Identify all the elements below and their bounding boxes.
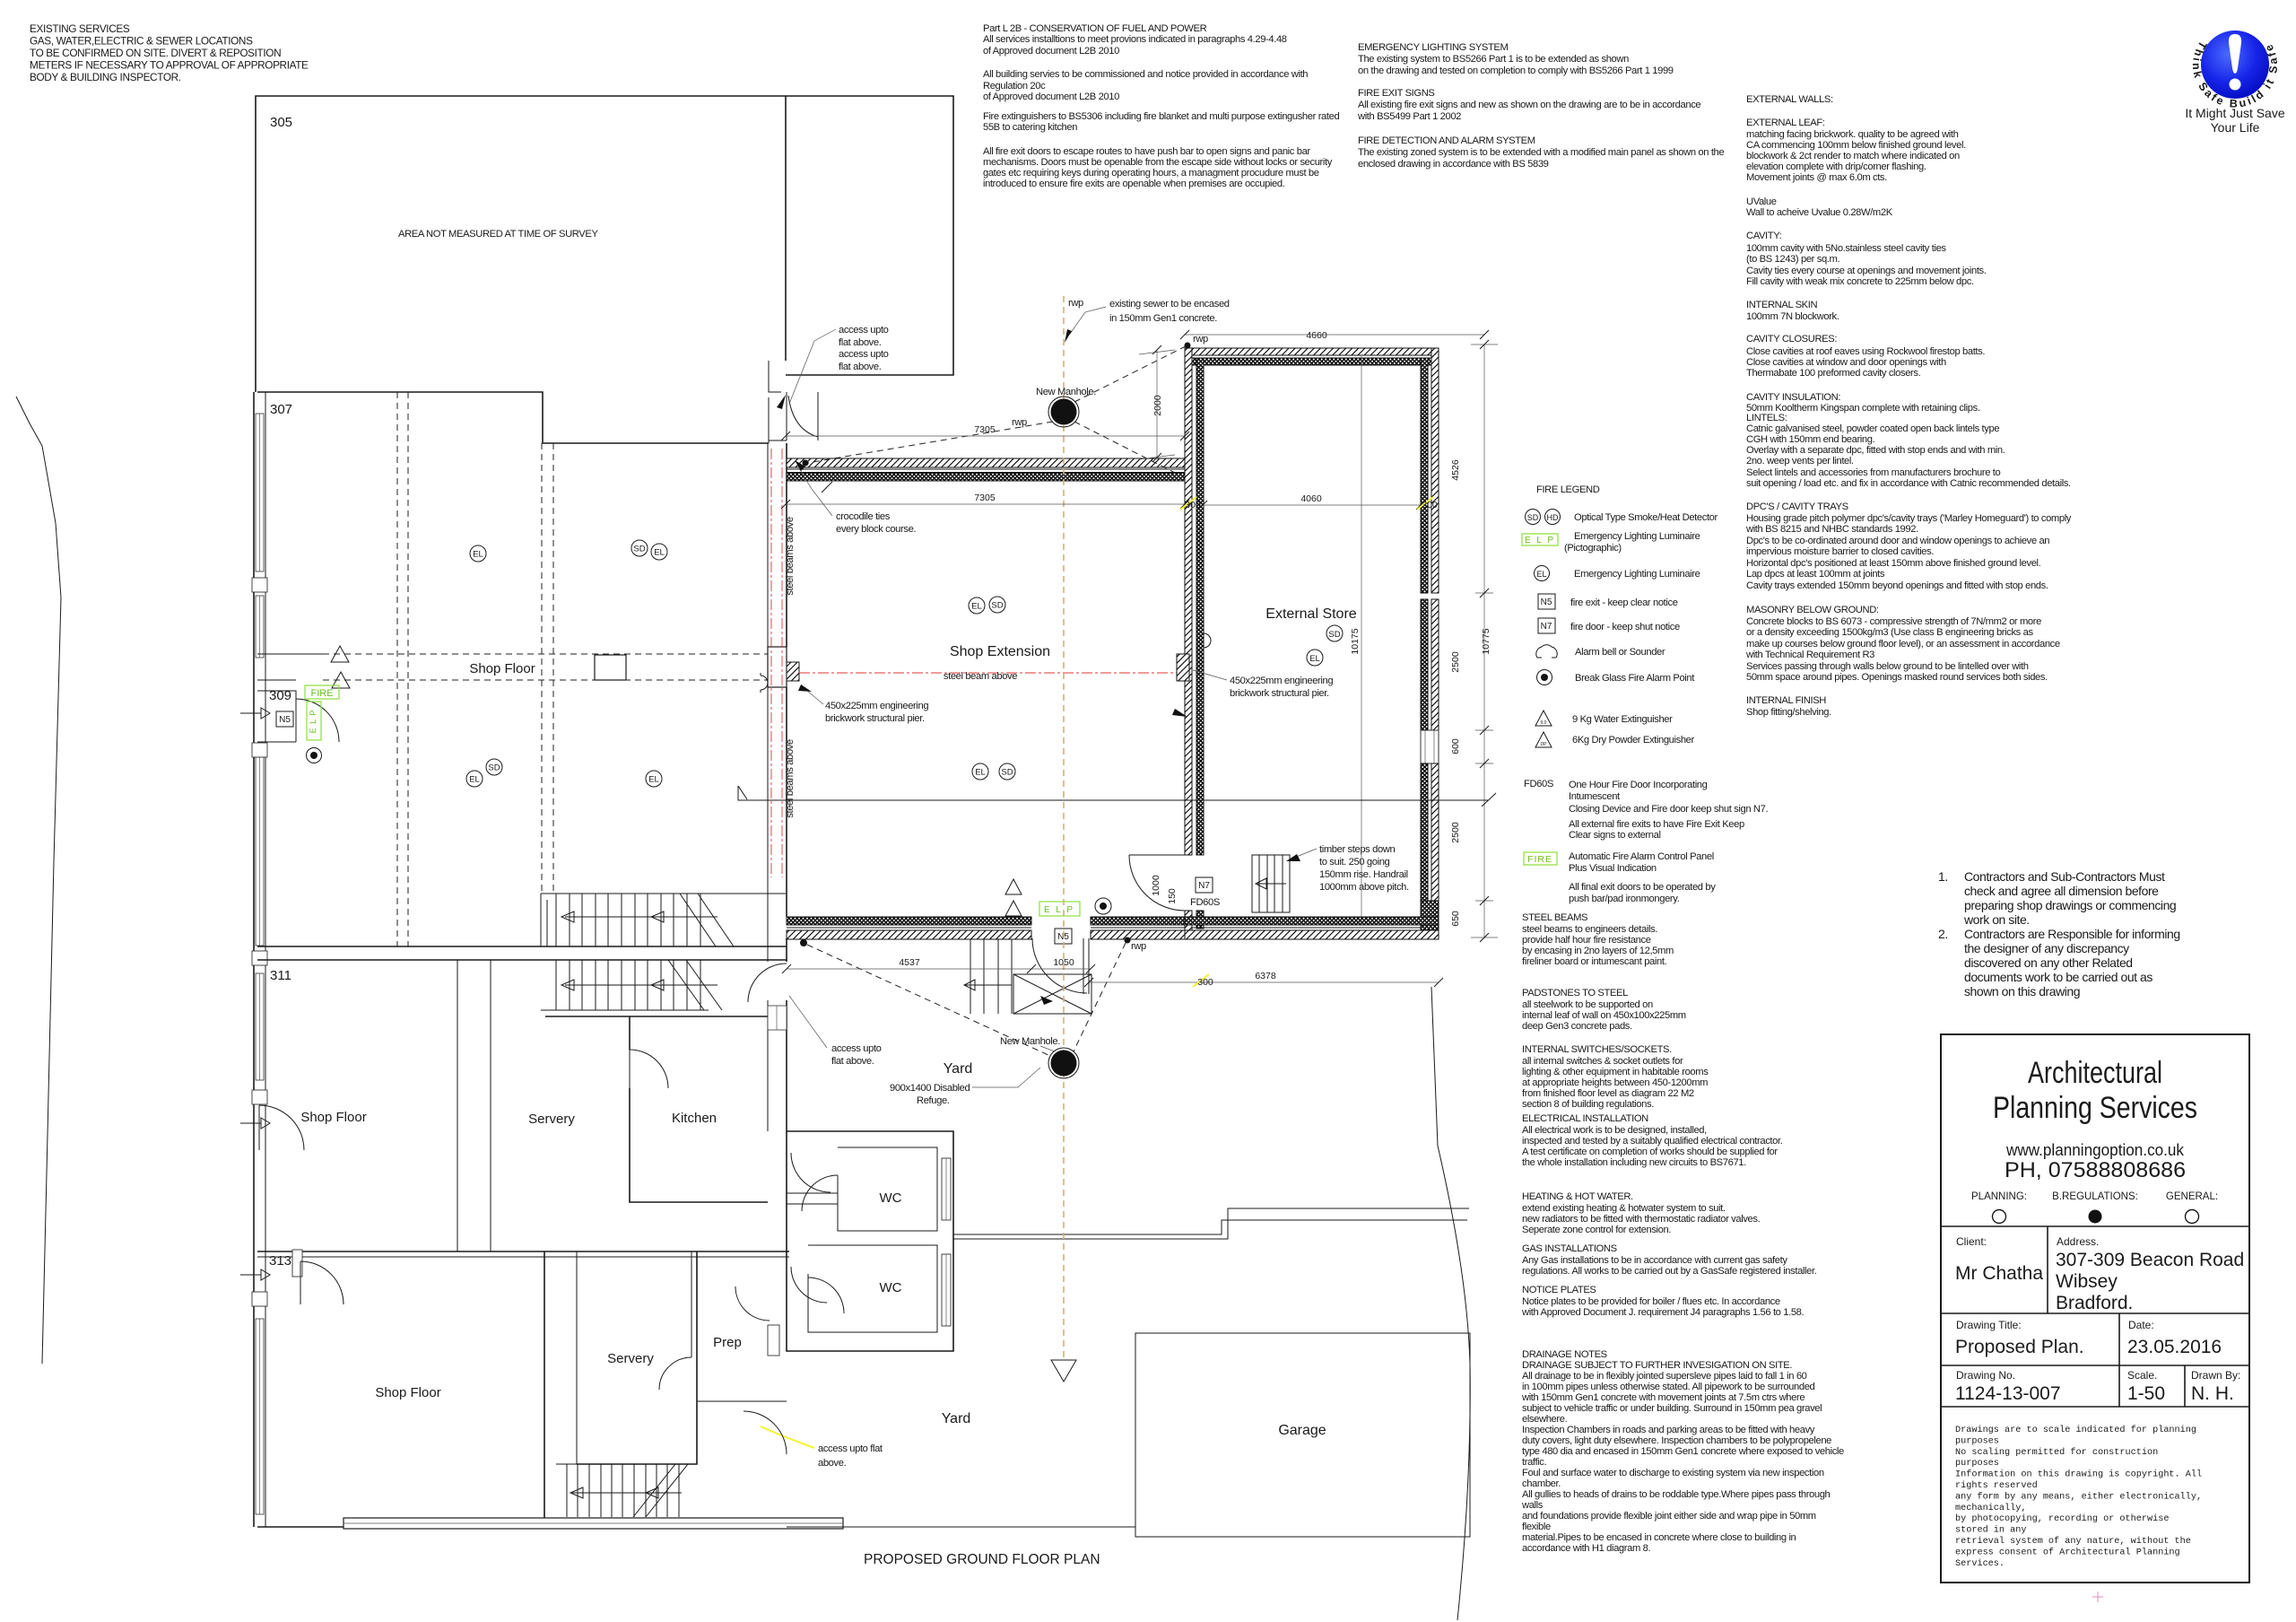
svg-text:EL: EL — [469, 775, 480, 785]
svg-text:with BS5499 Part 1 2002: with BS5499 Part 1 2002 — [1357, 111, 1461, 122]
svg-text:One Hour Fire Door Incorporati: One Hour Fire Door Incorporating — [1569, 780, 1708, 790]
svg-text:Refuge.: Refuge. — [917, 1095, 950, 1106]
svg-text:accordance with H1 diagram 8.: accordance with H1 diagram 8. — [1522, 1543, 1650, 1554]
svg-text:brickwork structural pier.: brickwork structural pier. — [1230, 688, 1329, 699]
svg-text:internal leaf of wall on 450x1: internal leaf of wall on 450x100x225mm — [1522, 1010, 1686, 1021]
svg-text:Overlay with a separate dpc, f: Overlay with a separate dpc, fitted with… — [1746, 445, 2005, 456]
svg-text:Horizontal dpc's positioned at: Horizontal dpc's positioned at least 150… — [1746, 558, 2041, 569]
svg-text:push bar/pad ironmongery.: push bar/pad ironmongery. — [1569, 894, 1680, 904]
svg-text:of Approved document L2B 2010: of Approved document L2B 2010 — [983, 46, 1119, 57]
svg-text:A test certificate on completi: A test certificate on completion of work… — [1522, 1147, 1778, 1157]
svg-text:9 Kg Water Extinguisher: 9 Kg Water Extinguisher — [1572, 714, 1673, 725]
svg-text:2no. weep vents per lintel.: 2no. weep vents per lintel. — [1746, 456, 1854, 467]
svg-text:All building servies to be com: All building servies to be commissioned … — [983, 69, 1308, 80]
svg-text:EL: EL — [654, 548, 665, 558]
svg-text:Intumescent: Intumescent — [1569, 791, 1621, 802]
svg-text:Cavity trays extended 150mm be: Cavity trays extended 150mm beyond openi… — [1746, 580, 2048, 591]
svg-text:steel beams to engineers detai: steel beams to engineers details. — [1522, 924, 1657, 935]
svg-text:EL: EL — [1309, 654, 1320, 664]
svg-text:with Technical Requirement R3: with Technical Requirement R3 — [1745, 650, 1874, 660]
svg-text:FIRE EXIT SIGNS: FIRE EXIT SIGNS — [1358, 88, 1434, 99]
svg-text:1050: 1050 — [1053, 957, 1074, 968]
svg-text:introduced to ensure fire exit: introduced to ensure fire exits are open… — [983, 179, 1285, 189]
svg-text:Notice plates to be provided f: Notice plates to be provided for boiler … — [1522, 1296, 1780, 1307]
svg-text:PROPOSED GROUND FLOOR PLAN: PROPOSED GROUND FLOOR PLAN — [864, 1552, 1100, 1567]
svg-text:EXISTING SERVICES: EXISTING SERVICES — [30, 22, 130, 35]
svg-text:check and agree all dimension: check and agree all dimension before — [1964, 884, 2159, 898]
svg-text:deep Gen3 concrete pads.: deep Gen3 concrete pads. — [1522, 1021, 1632, 1032]
svg-text:fireliner board or intumescant: fireliner board or intumescant paint. — [1522, 956, 1667, 967]
svg-text:EL: EL — [473, 550, 483, 560]
svg-text:type 480 dia and encased in 15: type 480 dia and encased in 150mm Gen1 c… — [1522, 1446, 1844, 1457]
svg-text:Wibsey: Wibsey — [2056, 1271, 2118, 1292]
svg-text:and foundations provide flexib: and foundations provide flexible joint e… — [1522, 1511, 1816, 1522]
svg-text:CAVITY CLOSURES:: CAVITY CLOSURES: — [1746, 334, 1837, 344]
svg-text:FD60S: FD60S — [1524, 779, 1553, 789]
svg-text:External Store: External Store — [1265, 606, 1356, 622]
svg-text:Housing grade pitch polymer dp: Housing grade pitch polymer dpc's/cavity… — [1746, 513, 2072, 524]
svg-text:flat above.: flat above. — [839, 362, 882, 372]
svg-text:purposes: purposes — [1955, 1459, 1999, 1469]
svg-text:www.planningoption.co.uk: www.planningoption.co.uk — [2005, 1141, 2185, 1159]
svg-text:to suit. 250 going: to suit. 250 going — [1319, 857, 1390, 868]
svg-text:existing sewer to be encased: existing sewer to be encased — [1109, 299, 1230, 310]
svg-text:1124-13-007: 1124-13-007 — [1955, 1383, 2061, 1404]
svg-text:HD: HD — [1547, 513, 1559, 522]
svg-text:NOTICE PLATES: NOTICE PLATES — [1522, 1285, 1596, 1295]
svg-text:6378: 6378 — [1255, 971, 1276, 981]
svg-text:EL: EL — [975, 768, 986, 778]
svg-text:WC: WC — [880, 1190, 902, 1206]
svg-text:flat above.: flat above. — [839, 337, 882, 348]
svg-text:Servery: Servery — [607, 1351, 654, 1366]
svg-text:access upto: access upto — [831, 1043, 882, 1054]
svg-text:900x1400 Disabled: 900x1400 Disabled — [890, 1083, 970, 1094]
svg-text:impervious moisture barrier to: impervious moisture barrier to closed ca… — [1746, 546, 1934, 557]
svg-text:HEATING & HOT WATER.: HEATING & HOT WATER. — [1522, 1191, 1633, 1202]
svg-text:PADSTONES TO STEEL: PADSTONES TO STEEL — [1522, 988, 1628, 998]
svg-text:4060: 4060 — [1300, 493, 1322, 504]
svg-text:Shop Extension: Shop Extension — [950, 644, 1050, 659]
svg-text:N7: N7 — [1541, 622, 1552, 632]
svg-text:SD: SD — [1527, 513, 1539, 522]
svg-text:311: 311 — [270, 968, 291, 983]
svg-text:All electrical work is to be: All electrical work is to be designed, i… — [1522, 1125, 1707, 1136]
svg-text:mechanisms. Doors must be open: mechanisms. Doors must be openable from … — [983, 157, 1333, 168]
svg-text:All existing fire exit signs a: All existing fire exit signs and new as … — [1358, 100, 1700, 110]
svg-text:Kitchen: Kitchen — [672, 1111, 717, 1126]
svg-text:Emergency Lighting Luminaire: Emergency Lighting Luminaire — [1574, 531, 1700, 542]
svg-text:at appropriate heights between: at appropriate heights between 450-1200m… — [1522, 1077, 1708, 1088]
svg-text:PH, 07588808686: PH, 07588808686 — [2005, 1158, 2186, 1182]
svg-text:Fill cavity with weak mix conc: Fill cavity with weak mix concrete to 22… — [1746, 276, 1974, 287]
svg-text:SD: SD — [488, 763, 500, 773]
svg-text:All fire exit doors to escape: All fire exit doors to escape routes to … — [983, 146, 1310, 157]
svg-text:rwp: rwp — [1012, 417, 1027, 428]
svg-text:regulations. All works to be c: regulations. All works to be carried out… — [1522, 1266, 1817, 1277]
svg-text:access upto: access upto — [839, 349, 889, 360]
svg-text:600: 600 — [1450, 738, 1461, 754]
svg-text:450x225mm engineering: 450x225mm engineering — [1230, 676, 1333, 686]
svg-text:All services installtions to m: All services installtions to meet provio… — [983, 34, 1287, 45]
svg-text:The existing system to BS5266: The existing system to BS5266 Part 1 is … — [1358, 54, 1629, 65]
svg-text:10175: 10175 — [1350, 628, 1361, 654]
svg-text:crocodile ties: crocodile ties — [836, 511, 891, 522]
svg-text:EXTERNAL WALLS:: EXTERNAL WALLS: — [1746, 94, 1833, 105]
svg-text:Clear signs to external: Clear signs to external — [1569, 830, 1661, 841]
svg-text:from finished floor level as d: from finished floor level as diagram 22 … — [1522, 1088, 1694, 1099]
svg-text:(Pictographic): (Pictographic) — [1564, 543, 1622, 554]
svg-text:(to BS 1243) per sq.m.: (to BS 1243) per sq.m. — [1746, 254, 1839, 265]
svg-text:Thermabate 100 preformed cavit: Thermabate 100 preformed cavity closers. — [1746, 368, 1921, 379]
svg-text:1000: 1000 — [1151, 875, 1161, 896]
svg-text:rwp: rwp — [1131, 941, 1146, 952]
svg-text:Seperate zone control for exte: Seperate zone control for extension. — [1522, 1225, 1671, 1235]
svg-text:access upto: access upto — [839, 325, 889, 336]
svg-text:all steelwork to be supported: all steelwork to be supported on — [1522, 999, 1653, 1010]
svg-text:documents work to be carried o: documents work to be carried out as — [1964, 970, 2152, 984]
svg-text:with Approved Document J. requ: with Approved Document J. requirement J4… — [1521, 1307, 1805, 1318]
svg-text:rights reserved: rights reserved — [1955, 1480, 2038, 1491]
svg-text:express consent of Architectur: express consent of Architectural Plannin… — [1955, 1547, 2180, 1557]
svg-text:Client:: Client: — [1956, 1235, 1987, 1248]
svg-text:Services passing through walls: Services passing through walls below gro… — [1746, 661, 2029, 672]
svg-text:METERS IF NECESSARY TO APPROVA: METERS IF NECESSARY TO APPROVAL OF APPRO… — [30, 59, 309, 72]
svg-text:SD: SD — [633, 545, 645, 554]
svg-text:EMERGENCY LIGHTING SYSTEM: EMERGENCY LIGHTING SYSTEM — [1358, 42, 1509, 53]
svg-text:EL: EL — [971, 602, 982, 612]
svg-text:All final exit doors to be ope: All final exit doors to be operated by — [1569, 882, 1716, 893]
svg-text:the designer of any discrepanc: the designer of any discrepancy — [1964, 941, 2129, 955]
svg-text:with 150mm Gen1 concrete with: with 150mm Gen1 concrete with movement j… — [1521, 1392, 1805, 1403]
svg-text:the whole installation includi: the whole installation including new cir… — [1522, 1157, 1746, 1168]
svg-text:Regulation 20c: Regulation 20c — [983, 81, 1046, 92]
svg-text:10775: 10775 — [1481, 628, 1492, 654]
svg-text:7305: 7305 — [974, 424, 996, 435]
svg-text:UValue: UValue — [1746, 196, 1777, 207]
svg-text:discovered on any other Relate: discovered on any other Related — [1964, 955, 2133, 970]
svg-text:Fire extinguishers to BS5306 i: Fire extinguishers to BS5306 including f… — [983, 111, 1339, 122]
svg-text:Planning Services: Planning Services — [1993, 1091, 2197, 1125]
svg-text:steel beams above: steel beams above — [785, 739, 796, 818]
svg-text:FIRE: FIRE — [310, 688, 333, 699]
svg-text:300: 300 — [1197, 977, 1213, 988]
svg-text:in 100mm pipes unless otherwis: in 100mm pipes unless otherwise stated. … — [1522, 1382, 1815, 1392]
svg-text:Lap dpcs at least 100mm at joi: Lap dpcs at least 100mm at joints — [1746, 569, 1885, 580]
svg-text:INTERNAL SWITCHES/SOCKETS.: INTERNAL SWITCHES/SOCKETS. — [1522, 1044, 1672, 1055]
svg-text:FIRE DETECTION AND ALARM SYSTE: FIRE DETECTION AND ALARM SYSTEM — [1358, 135, 1535, 146]
svg-text:stored in any: stored in any — [1955, 1525, 2026, 1536]
svg-text:Concrete blocks to BS 6073 - c: Concrete blocks to BS 6073 - compressive… — [1746, 616, 2041, 627]
svg-text:lighting & other equipment in: lighting & other equipment in habitable … — [1522, 1067, 1709, 1077]
svg-text:N7: N7 — [1198, 881, 1210, 891]
svg-text:4660: 4660 — [1306, 330, 1327, 341]
svg-text:GENERAL:: GENERAL: — [2166, 1191, 2218, 1202]
svg-text:INTERNAL FINISH: INTERNAL FINISH — [1746, 695, 1826, 706]
svg-text:any form by any means, either: any form by any means, either electronic… — [1955, 1491, 2202, 1502]
svg-text:Bradford.: Bradford. — [2056, 1293, 2133, 1313]
svg-text:313: 313 — [269, 1253, 291, 1269]
svg-text:E L P: E L P — [1044, 905, 1074, 915]
svg-text:access upto flat: access upto flat — [818, 1443, 883, 1454]
svg-text:Servery: Servery — [528, 1112, 575, 1127]
svg-text:FD60S: FD60S — [1190, 897, 1220, 908]
svg-text:preparing shop drawings or com: preparing shop drawings or commencing — [1964, 898, 2176, 912]
svg-text:1-50: 1-50 — [2127, 1383, 2165, 1404]
svg-text:All gullies to heads of drains: All gullies to heads of drains to be rod… — [1522, 1489, 1831, 1500]
svg-text:BODY & BUILDING INSPECTOR.: BODY & BUILDING INSPECTOR. — [30, 71, 181, 83]
svg-text:all internal switches & socket: all internal switches & socket outlets f… — [1522, 1056, 1683, 1067]
svg-text:Cavity ties every course at op: Cavity ties every course at openings and… — [1746, 266, 1987, 276]
svg-text:1.: 1. — [1938, 869, 1948, 884]
svg-text:Emergency Lighting Luminaire: Emergency Lighting Luminaire — [1574, 569, 1700, 580]
svg-text:Mr Chatha: Mr Chatha — [1955, 1263, 2043, 1284]
svg-text:7305: 7305 — [974, 493, 996, 503]
svg-text:6Kg Dry Powder Extinguisher: 6Kg Dry Powder Extinguisher — [1572, 735, 1695, 746]
svg-text:All external fire exits to hav: All external fire exits to have Fire Exi… — [1569, 819, 1744, 830]
svg-text:LINTELS:: LINTELS: — [1746, 413, 1787, 423]
svg-text:New Manhole.: New Manhole. — [1000, 1036, 1060, 1047]
svg-text:with BS 8215 and NHBC standard: with BS 8215 and NHBC standards 1992. — [1745, 524, 1918, 535]
svg-text:subject to vehicle traffic or: subject to vehicle traffic or under buil… — [1522, 1403, 1822, 1414]
svg-text:Proposed Plan.: Proposed Plan. — [1955, 1337, 2084, 1357]
svg-text:SD: SD — [1328, 630, 1340, 640]
svg-text:2500: 2500 — [1450, 651, 1461, 673]
svg-text:305: 305 — [270, 115, 292, 130]
svg-text:100mm 7N blockwork.: 100mm 7N blockwork. — [1746, 311, 1839, 322]
svg-text:E L P: E L P — [1525, 536, 1555, 545]
svg-text:new radiators to be fitted wit: new radiators to be fitted with thermost… — [1522, 1214, 1761, 1225]
svg-text:chamber.: chamber. — [1522, 1478, 1561, 1489]
svg-text:on the drawing and tested on c: on the drawing and tested on completion … — [1358, 65, 1674, 76]
svg-text:GAS INSTALLATIONS: GAS INSTALLATIONS — [1522, 1243, 1617, 1254]
svg-text:steel beam above: steel beam above — [944, 671, 1017, 682]
svg-text:N5: N5 — [279, 715, 291, 725]
svg-text:50mm space around pipes. Openi: 50mm space around pipes. Openings masked… — [1746, 672, 2048, 683]
svg-text:2000: 2000 — [1152, 395, 1163, 416]
svg-text:Closing Device and Fire door k: Closing Device and Fire door keep shut s… — [1569, 804, 1768, 815]
svg-text:extend existing heating & hotw: extend existing heating & hotwater syste… — [1522, 1203, 1726, 1214]
svg-text:duty covers, light duty elsewh: duty covers, light duty elsewhere. Inspe… — [1522, 1435, 1831, 1446]
svg-text:23.05.2016: 23.05.2016 — [2127, 1337, 2222, 1357]
svg-text:INTERNAL SKIN: INTERNAL SKIN — [1746, 300, 1817, 310]
svg-text:EL: EL — [648, 775, 659, 785]
svg-text:rwp: rwp — [1193, 334, 1208, 344]
svg-text:Drawn By:: Drawn By: — [2191, 1369, 2240, 1382]
svg-text:retrieval system of any nature: retrieval system of any nature, without … — [1955, 1536, 2191, 1547]
svg-text:Select lintels and accessories: Select lintels and accessories from manu… — [1746, 467, 2001, 478]
svg-text:CGH with 150mm end bearing.: CGH with 150mm end bearing. — [1746, 434, 1875, 445]
svg-text:Close cavities at roof eaves u: Close cavities at roof eaves using Rockw… — [1746, 346, 1985, 357]
svg-text:Break Glass Fire Alarm Point: Break Glass Fire Alarm Point — [1575, 673, 1695, 684]
svg-text:Optical Type Smoke/Heat Detect: Optical Type Smoke/Heat Detector — [1574, 512, 1718, 523]
svg-text:gates etc requiring keys durin: gates etc requiring keys during operatin… — [983, 168, 1319, 179]
svg-text:STEEL BEAMS: STEEL BEAMS — [1522, 912, 1587, 923]
svg-text:No scaling permitted for const: No scaling permitted for construction — [1955, 1447, 2158, 1458]
svg-text:elevation complete with drip/c: elevation complete with drip/corner flas… — [1746, 161, 1926, 172]
svg-text:150: 150 — [1167, 888, 1178, 904]
svg-text:FIRE LEGEND: FIRE LEGEND — [1536, 484, 1600, 495]
svg-text:shown on this drawing: shown on this drawing — [1964, 984, 2080, 998]
svg-text:above.: above. — [818, 1458, 847, 1469]
svg-text:Address.: Address. — [2057, 1235, 2099, 1248]
svg-text:Inspection Chambers in roads a: Inspection Chambers in roads and parking… — [1522, 1425, 1815, 1435]
svg-text:steel beams above: steel beams above — [785, 517, 796, 596]
svg-text:Scale.: Scale. — [2127, 1369, 2157, 1382]
svg-text:DP: DP — [1541, 742, 1548, 747]
svg-text:307: 307 — [270, 402, 292, 417]
svg-text:traffic.: traffic. — [1522, 1457, 1546, 1468]
svg-text:in 150mm Gen1 concrete.: in 150mm Gen1 concrete. — [1109, 313, 1217, 324]
svg-text:Prep: Prep — [713, 1335, 742, 1350]
svg-text:CA commencing 100mm below fini: CA commencing 100mm below finished groun… — [1746, 140, 1966, 151]
svg-text:Alarm bell or Sounder: Alarm bell or Sounder — [1575, 647, 1665, 658]
svg-text:150mm rise. Handrail: 150mm rise. Handrail — [1319, 869, 1408, 880]
svg-text:Contractors are Responsible fo: Contractors are Responsible for informin… — [1964, 927, 2180, 941]
svg-text:GAS, WATER,ELECTRIC & SEWER LO: GAS, WATER,ELECTRIC & SEWER LOCATIONS — [30, 35, 253, 48]
svg-text:flexible: flexible — [1522, 1522, 1551, 1532]
svg-text:B.REGULATIONS:: B.REGULATIONS: — [2052, 1191, 2138, 1202]
svg-text:purposes: purposes — [1955, 1436, 1999, 1446]
svg-text:SD: SD — [1001, 768, 1013, 778]
svg-text:Shop Floor: Shop Floor — [469, 661, 535, 676]
svg-text:PLANNING:: PLANNING: — [1971, 1191, 2027, 1202]
svg-text:Drawing Title:: Drawing Title: — [1956, 1319, 2022, 1331]
svg-text:Shop fitting/shelving.: Shop fitting/shelving. — [1746, 707, 1831, 718]
svg-text:walls: walls — [1521, 1500, 1544, 1511]
svg-text:Architectural: Architectural — [2028, 1056, 2162, 1090]
svg-text:N5: N5 — [1541, 597, 1552, 607]
svg-text:DRAINAGE SUBJECT TO FURTHER IN: DRAINAGE SUBJECT TO FURTHER INVESIGATION… — [1522, 1360, 1792, 1371]
svg-text:Movement joints @ max 6.0m cts: Movement joints @ max 6.0m cts. — [1746, 172, 1887, 183]
svg-text:FIRE: FIRE — [1527, 854, 1552, 865]
svg-text:Plus Visual Indication: Plus Visual Indication — [1569, 863, 1657, 874]
svg-text:The existing zoned system is t: The existing zoned system is to be exten… — [1358, 147, 1724, 158]
svg-text:300: 300 — [1185, 500, 1201, 510]
svg-text:Yard: Yard — [944, 1061, 973, 1077]
svg-text:of Approved document L2B 2010: of Approved document L2B 2010 — [983, 92, 1119, 102]
svg-text:9.0: 9.0 — [1541, 720, 1547, 726]
svg-text:blockwork & 2ct render to matc: blockwork & 2ct render to match where in… — [1746, 151, 1960, 161]
svg-text:every block course.: every block course. — [836, 524, 916, 535]
svg-text:Dpc's to be co-ordinated aroun: Dpc's to be co-ordinated around door and… — [1746, 536, 2049, 546]
svg-text:Part L 2B - CONSERVATION OF FU: Part L 2B - CONSERVATION OF FUEL AND POW… — [983, 23, 1207, 34]
svg-text:work on site.: work on site. — [1963, 912, 2030, 927]
svg-text:inspected and tested by a suit: inspected and tested by a suitably quali… — [1522, 1136, 1783, 1147]
svg-text:CAVITY INSULATION:: CAVITY INSULATION: — [1746, 392, 1840, 403]
svg-text:SD: SD — [991, 601, 1003, 611]
svg-text:650: 650 — [1450, 911, 1461, 927]
svg-text:4537: 4537 — [899, 957, 920, 968]
svg-text:E L P: E L P — [309, 710, 317, 734]
svg-text:4526: 4526 — [1450, 459, 1461, 481]
svg-text:307-309 Beacon Road: 307-309 Beacon Road — [2056, 1250, 2244, 1270]
svg-text:Automatic Fire Alarm Control P: Automatic Fire Alarm Control Panel — [1569, 851, 1714, 862]
svg-text:450x225mm engineering: 450x225mm engineering — [825, 701, 928, 711]
svg-text:section 8 of building regulati: section 8 of building regulations. — [1522, 1099, 1654, 1110]
svg-text:by photocopying, recording or: by photocopying, recording or otherwise — [1955, 1513, 2169, 1524]
svg-text:elsewhere.: elsewhere. — [1522, 1414, 1568, 1425]
svg-text:AREA NOT MEASURED AT TIME OF S: AREA NOT MEASURED AT TIME OF SURVEY — [398, 229, 598, 240]
svg-text:All drainage to be in flexibly: All drainage to be in flexibly jointed s… — [1522, 1371, 1807, 1382]
svg-text:Catnic galvanised steel, powde: Catnic galvanised steel, powder coated o… — [1746, 423, 1999, 434]
svg-text:Foul and surface water to disc: Foul and surface water to discharge to e… — [1522, 1468, 1824, 1478]
svg-text:DRAINAGE NOTES: DRAINAGE NOTES — [1522, 1349, 1607, 1360]
svg-text:Wall to acheive Uvalue 0.28W/m: Wall to acheive Uvalue 0.28W/m2K — [1746, 207, 1893, 218]
svg-text:Shop Floor: Shop Floor — [375, 1385, 440, 1400]
svg-text:timber steps down: timber steps down — [1319, 844, 1395, 855]
svg-text:mechanically,: mechanically, — [1955, 1503, 2026, 1513]
svg-text:fire door - keep shut notice: fire door - keep shut notice — [1570, 622, 1680, 632]
svg-text:EXTERNAL LEAF:: EXTERNAL LEAF: — [1746, 118, 1825, 128]
svg-text:Any Gas installations to be in: Any Gas installations to be in accordanc… — [1522, 1255, 1787, 1266]
svg-text:Your Life: Your Life — [2211, 120, 2260, 135]
svg-text:Drawings are to scale indicate: Drawings are to scale indicated for plan… — [1955, 1425, 2196, 1435]
svg-text:Contractors and Sub-Contractor: Contractors and Sub-Contractors Must — [1964, 869, 2165, 884]
svg-text:suit opening / load etc. and f: suit opening / load etc. and fix in acco… — [1746, 478, 2071, 489]
svg-text:Date:: Date: — [2128, 1319, 2154, 1331]
svg-text:ELECTRICAL INSTALLATION: ELECTRICAL INSTALLATION — [1522, 1113, 1648, 1124]
svg-text:Information on this drawing is: Information on this drawing is copyright… — [1955, 1469, 2202, 1480]
svg-text:2500: 2500 — [1450, 822, 1461, 843]
svg-text:Drawing No.: Drawing No. — [1956, 1369, 2015, 1382]
svg-text:TO BE CONFIRMED ON SITE. DIVER: TO BE CONFIRMED ON SITE. DIVERT & REPOSI… — [30, 47, 281, 59]
svg-text:make up courses below ground f: make up courses below ground floor level… — [1746, 639, 2060, 650]
svg-text:MASONRY BELOW GROUND:: MASONRY BELOW GROUND: — [1746, 605, 1879, 615]
svg-text:matching facing brickwork. qua: matching facing brickwork. quality to be… — [1746, 129, 1959, 140]
svg-text:100mm cavity with 5No.stainles: 100mm cavity with 5No.stainless steel ca… — [1746, 243, 1946, 254]
svg-text:1000mm above pitch.: 1000mm above pitch. — [1319, 882, 1409, 893]
svg-text:WC: WC — [880, 1280, 902, 1295]
svg-text:flat above.: flat above. — [831, 1056, 874, 1067]
svg-text:Shop Floor: Shop Floor — [300, 1110, 366, 1125]
svg-text:55B to catering kitchen: 55B to catering kitchen — [983, 122, 1077, 133]
svg-text:CAVITY:: CAVITY: — [1746, 231, 1782, 241]
svg-text:It Might Just Save: It Might Just Save — [2185, 106, 2284, 120]
svg-text:material.Pipes to be encased i: material.Pipes to be encased in concrete… — [1522, 1532, 1796, 1543]
svg-text:provide half hour fire resista: provide half hour fire resistance — [1522, 935, 1651, 946]
svg-text:fire exit - keep clear notice: fire exit - keep clear notice — [1570, 597, 1678, 608]
svg-text:Yard: Yard — [942, 1411, 971, 1426]
svg-text:rwp: rwp — [1068, 298, 1083, 309]
svg-text:N. H.: N. H. — [2191, 1383, 2234, 1404]
svg-text:EL: EL — [1536, 570, 1546, 579]
svg-text:300: 300 — [1422, 500, 1438, 510]
svg-text:by encasing in 2no layers of 1: by encasing in 2no layers of 12,5mm — [1522, 946, 1674, 956]
svg-text:DPC'S / CAVITY TRAYS: DPC'S / CAVITY TRAYS — [1746, 501, 1848, 512]
svg-text:or a density exceeding 1500kg/: or a density exceeding 1500kg/m3 (Use cl… — [1746, 627, 2033, 638]
svg-text:Garage: Garage — [1278, 1423, 1326, 1438]
svg-text:2.: 2. — [1938, 927, 1948, 941]
svg-text:enclosed drawing in accordance: enclosed drawing in accordance with BS 5… — [1358, 159, 1549, 170]
svg-text:Services.: Services. — [1955, 1558, 2005, 1569]
svg-text:Close cavities at window and d: Close cavities at window and door openin… — [1746, 357, 1946, 368]
svg-text:brickwork structural pier.: brickwork structural pier. — [825, 713, 925, 724]
